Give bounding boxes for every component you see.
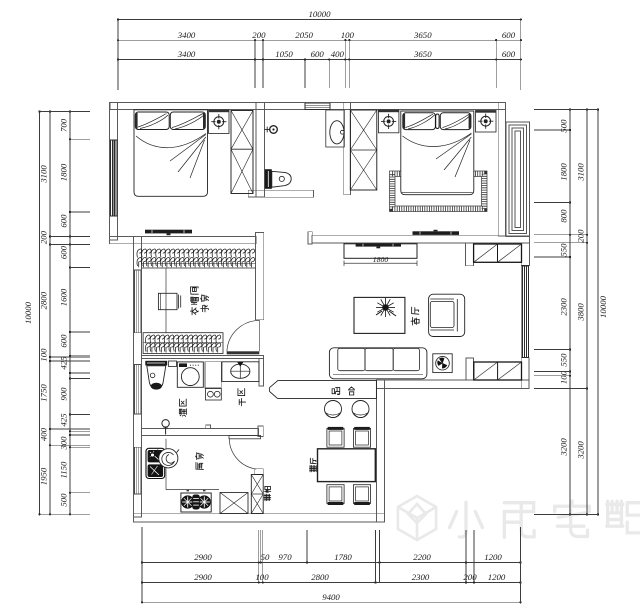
svg-text:3400: 3400 — [177, 30, 196, 40]
svg-text:200: 200 — [39, 230, 49, 244]
svg-text:500: 500 — [59, 493, 69, 507]
svg-text:425: 425 — [59, 413, 69, 427]
svg-text:425: 425 — [59, 356, 69, 370]
svg-text:600: 600 — [59, 245, 69, 259]
svg-text:2800: 2800 — [311, 572, 329, 582]
svg-text:1600: 1600 — [59, 288, 69, 306]
svg-text:200: 200 — [252, 30, 266, 40]
svg-text:10000: 10000 — [598, 295, 608, 318]
svg-text:100: 100 — [341, 30, 355, 40]
svg-text:1200: 1200 — [484, 552, 502, 562]
svg-text:700: 700 — [59, 118, 69, 132]
svg-text:600: 600 — [59, 214, 69, 228]
svg-text:2050: 2050 — [295, 30, 313, 40]
svg-text:200: 200 — [463, 572, 477, 582]
svg-text:500: 500 — [559, 119, 569, 133]
svg-text:1780: 1780 — [334, 552, 352, 562]
svg-text:3650: 3650 — [413, 49, 432, 59]
svg-text:1800: 1800 — [373, 255, 389, 264]
svg-text:3400: 3400 — [177, 49, 196, 59]
svg-text:10000: 10000 — [309, 9, 332, 19]
svg-text:1950: 1950 — [39, 467, 49, 485]
svg-text:100: 100 — [255, 572, 269, 582]
svg-text:3200: 3200 — [576, 441, 586, 460]
svg-text:1200: 1200 — [488, 572, 506, 582]
svg-text:550: 550 — [559, 353, 569, 367]
svg-text:1150: 1150 — [59, 461, 69, 479]
svg-text:600: 600 — [502, 49, 516, 59]
svg-text:50: 50 — [261, 552, 270, 562]
svg-text:2900: 2900 — [194, 572, 212, 582]
svg-text:400: 400 — [331, 49, 345, 59]
svg-text:2900: 2900 — [194, 552, 212, 562]
svg-text:800: 800 — [559, 209, 569, 223]
svg-text:2200: 2200 — [413, 552, 431, 562]
svg-text:1800: 1800 — [559, 163, 569, 181]
svg-text:600: 600 — [502, 30, 516, 40]
svg-text:970: 970 — [278, 552, 292, 562]
svg-text:3800: 3800 — [576, 303, 586, 322]
svg-text:1750: 1750 — [39, 384, 49, 402]
svg-text:2300: 2300 — [412, 572, 430, 582]
svg-text:600: 600 — [59, 334, 69, 348]
svg-text:3200: 3200 — [559, 438, 569, 457]
svg-text:2300: 2300 — [559, 298, 569, 316]
svg-text:300: 300 — [59, 436, 69, 451]
svg-text:1800: 1800 — [59, 163, 69, 181]
svg-text:1050: 1050 — [275, 49, 293, 59]
svg-text:550: 550 — [559, 243, 569, 257]
svg-text:400: 400 — [39, 427, 49, 441]
svg-text:3650: 3650 — [413, 30, 432, 40]
svg-text:900: 900 — [59, 387, 69, 401]
svg-text:3100: 3100 — [576, 163, 586, 182]
svg-text:200: 200 — [576, 229, 586, 243]
svg-text:9400: 9400 — [322, 592, 340, 602]
svg-text:100: 100 — [39, 348, 49, 362]
svg-text:100: 100 — [559, 370, 569, 384]
svg-text:10000: 10000 — [23, 301, 33, 324]
svg-text:2800: 2800 — [39, 291, 49, 309]
svg-text:3100: 3100 — [39, 165, 49, 184]
svg-text:600: 600 — [311, 49, 325, 59]
